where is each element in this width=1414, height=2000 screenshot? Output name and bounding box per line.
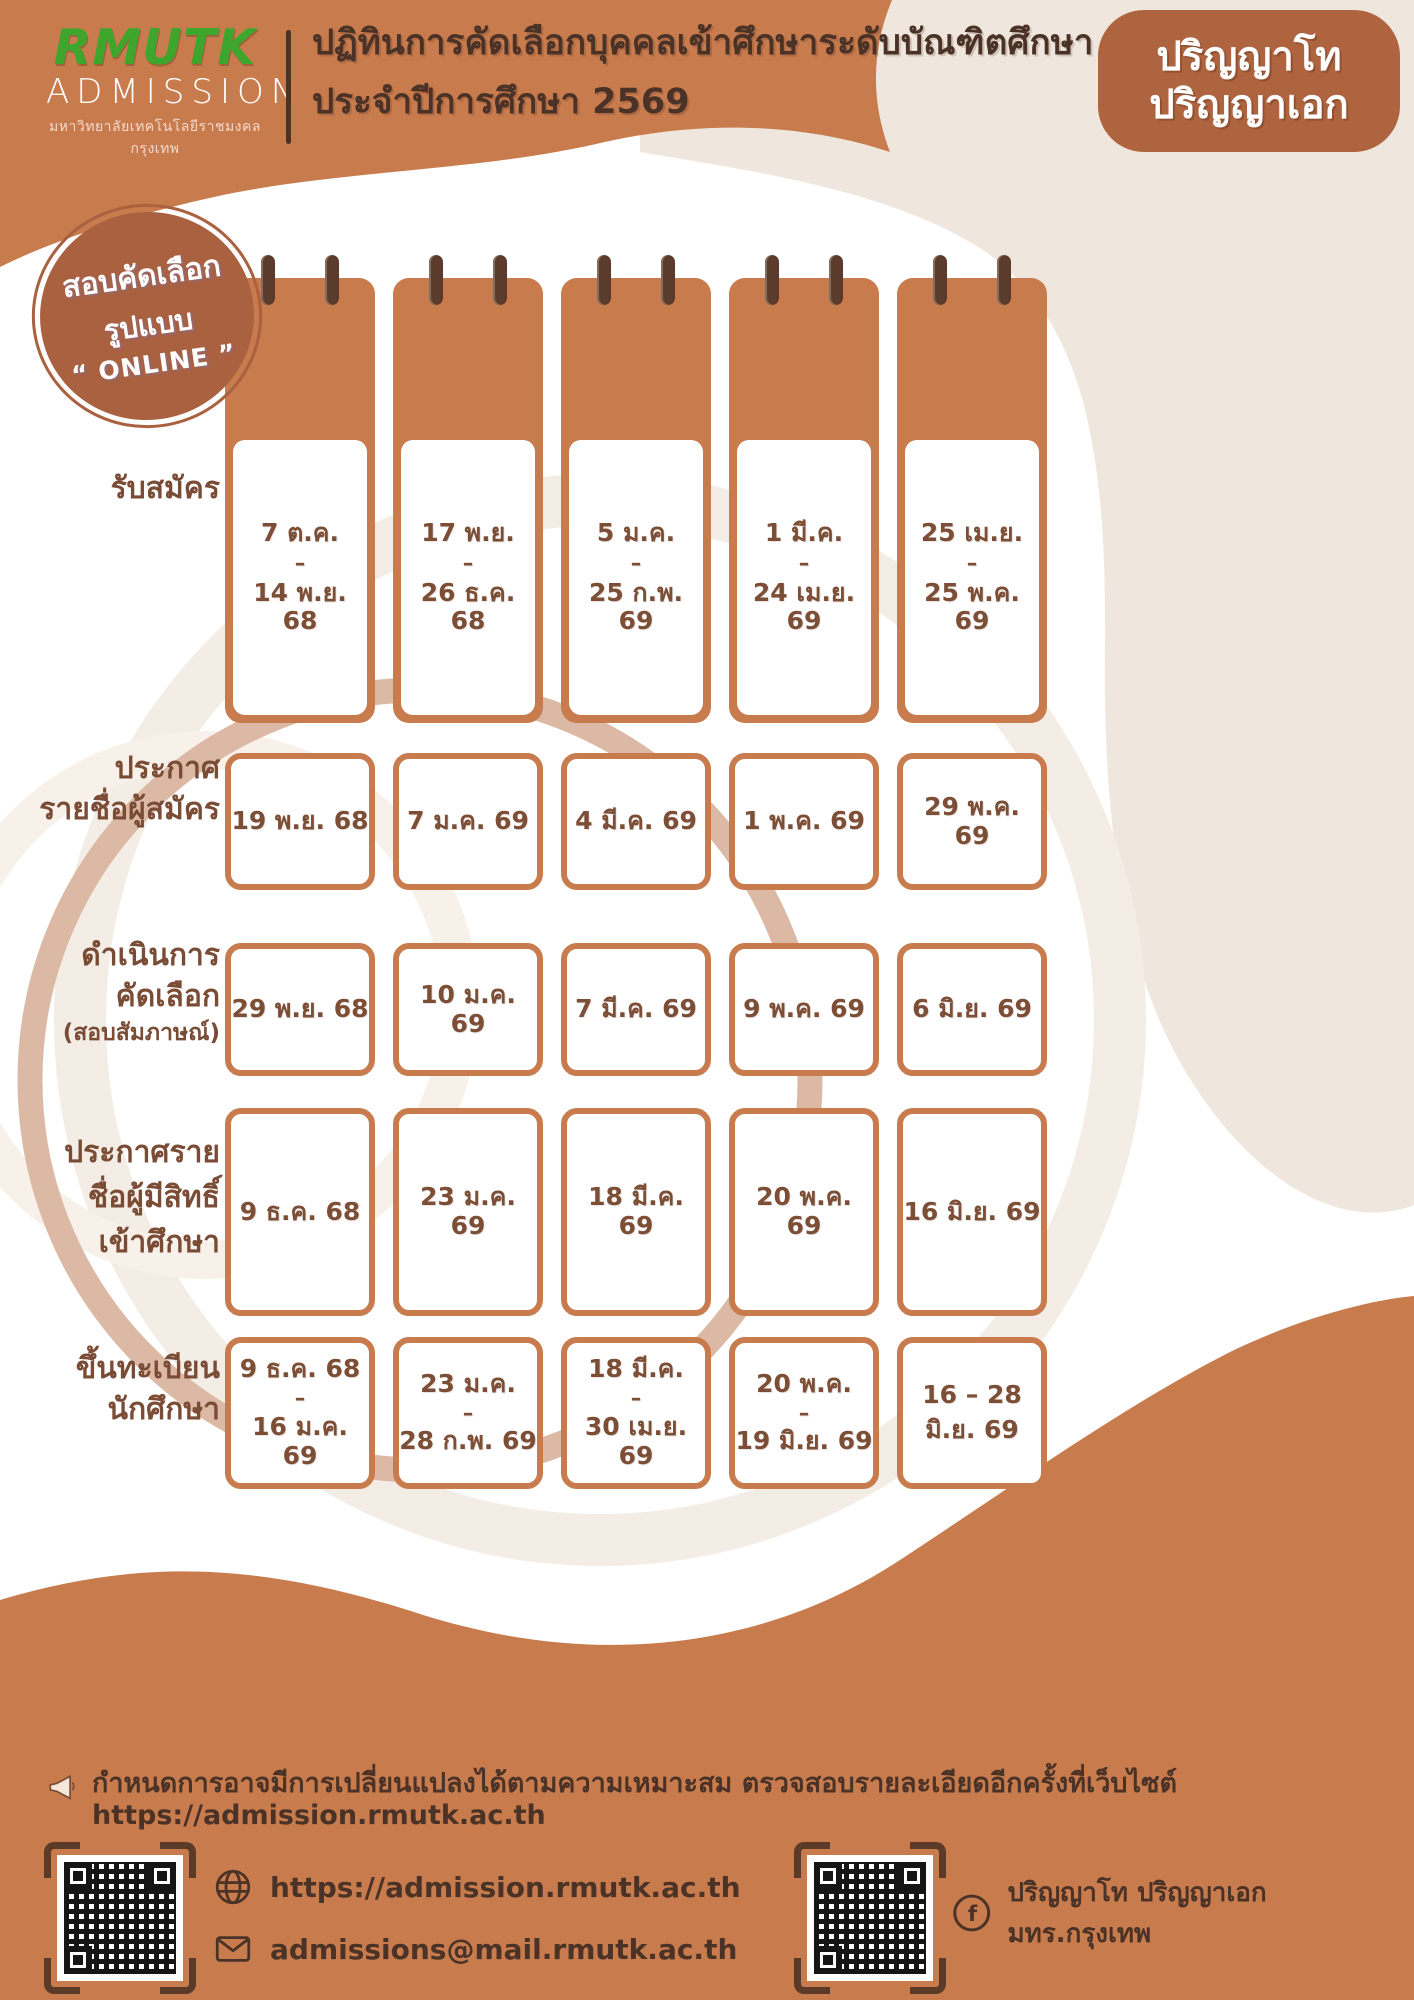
calendar-card: 25 เม.ย. – 25 พ.ค. 69 <box>897 278 1047 723</box>
degree-masters: ปริญญาโท <box>1156 36 1341 78</box>
logo-admission-text: ADMISSION <box>46 73 270 112</box>
badge-line2: รูปแบบ <box>101 296 196 354</box>
poster-title: ปฏิทินการคัดเลือกบุคคลเข้าศึกษาระดับบัณฑ… <box>312 26 1093 120</box>
logo-brand-text: RMUTK <box>40 22 270 73</box>
schedule-cell: 23 ม.ค. – 28 ก.พ. 69 <box>393 1337 543 1489</box>
note-url[interactable]: https://admission.rmutk.ac.th <box>92 1800 546 1831</box>
row-label-apply: รับสมัคร <box>8 468 220 509</box>
binder-ring-icon <box>325 255 339 305</box>
binder-ring-icon <box>429 255 443 305</box>
row-label-enrollment: ขึ้นทะเบียน นักศึกษา <box>8 1348 220 1431</box>
degree-doctoral: ปริญญาเอก <box>1149 84 1348 126</box>
badge-line3: “ ONLINE ” <box>70 338 238 390</box>
facebook-qr-code[interactable] <box>794 1842 946 1994</box>
schedule-cell: 7 มี.ค. 69 <box>561 943 711 1076</box>
calendar-card: 17 พ.ย. – 26 ธ.ค. 68 <box>393 278 543 723</box>
schedule-cell: 23 ม.ค. 69 <box>393 1108 543 1316</box>
svg-text:f: f <box>968 1902 978 1927</box>
schedule-cell: 9 ธ.ค. 68 <box>225 1108 375 1316</box>
logo-university-text: มหาวิทยาลัยเทคโนโลยีราชมงคลกรุงเทพ <box>40 116 270 160</box>
globe-icon <box>212 1866 254 1908</box>
schedule-cell: 9 ธ.ค. 68 – 16 ม.ค. 69 <box>225 1337 375 1489</box>
date-panel: 25 เม.ย. – 25 พ.ค. 69 <box>905 440 1039 715</box>
schedule-cell: 18 มี.ค. 69 <box>561 1108 711 1316</box>
binder-ring-icon <box>661 255 675 305</box>
badge-line1: สอบคัดเลือก <box>59 242 224 311</box>
schedule-cell: 29 พ.ค. 69 <box>897 753 1047 890</box>
date-panel: 1 มี.ค. – 24 เม.ย. 69 <box>737 440 871 715</box>
date-panel: 17 พ.ย. – 26 ธ.ค. 68 <box>401 440 535 715</box>
schedule-cell: 7 ม.ค. 69 <box>393 753 543 890</box>
email-link[interactable]: admissions@mail.rmutk.ac.th <box>212 1928 737 1970</box>
website-link[interactable]: https://admission.rmutk.ac.th <box>212 1866 741 1908</box>
rmutk-logo: RMUTK ADMISSION มหาวิทยาลัยเทคโนโลยีราชม… <box>40 22 270 160</box>
schedule-cell: 4 มี.ค. 69 <box>561 753 711 890</box>
schedule-cell: 16 มิ.ย. 69 <box>897 1108 1047 1316</box>
schedule-cell: 20 พ.ค. – 19 มิ.ย. 69 <box>729 1337 879 1489</box>
degree-level-badge: ปริญญาโท ปริญญาเอก <box>1098 10 1400 152</box>
schedule-cell: 19 พ.ย. 68 <box>225 753 375 890</box>
binder-ring-icon <box>765 255 779 305</box>
schedule-cell: 10 ม.ค. 69 <box>393 943 543 1076</box>
row-label-selection: ดำเนินการ คัดเลือก (สอบสัมภาษณ์) <box>8 936 220 1049</box>
schedule-cell: 9 พ.ค. 69 <box>729 943 879 1076</box>
date-panel: 7 ต.ค. – 14 พ.ย. 68 <box>233 440 367 715</box>
binder-ring-icon <box>493 255 507 305</box>
facebook-link[interactable]: f ปริญญาโท ปริญญาเอก มทร.กรุงเทพ <box>952 1872 1414 1954</box>
envelope-icon <box>212 1928 254 1970</box>
binder-ring-icon <box>997 255 1011 305</box>
binder-ring-icon <box>261 255 275 305</box>
binder-ring-icon <box>829 255 843 305</box>
date-panel: 5 ม.ค. – 25 ก.พ. 69 <box>569 440 703 715</box>
note-text: กำหนดการอาจมีการเปลี่ยนแปลงได้ตามความเหม… <box>92 1768 1177 1799</box>
schedule-cell: 1 พ.ค. 69 <box>729 753 879 890</box>
facebook-icon: f <box>952 1893 991 1933</box>
disclaimer-note: กำหนดการอาจมีการเปลี่ยนแปลงได้ตามความเหม… <box>46 1768 1386 1833</box>
schedule-cell: 18 มี.ค. – 30 เม.ย. 69 <box>561 1337 711 1489</box>
title-line2: ประจำปีการศึกษา 2569 <box>312 85 1093 120</box>
header-divider <box>286 30 291 144</box>
website-qr-code[interactable] <box>44 1842 196 1994</box>
calendar-card: 5 ม.ค. – 25 ก.พ. 69 <box>561 278 711 723</box>
megaphone-icon <box>46 1770 80 1804</box>
schedule-cell: 20 พ.ค. 69 <box>729 1108 879 1316</box>
row-label-applicant-list: ประกาศ รายชื่อผู้สมัคร <box>8 748 220 831</box>
calendar-card: 1 มี.ค. – 24 เม.ย. 69 <box>729 278 879 723</box>
schedule-cell: 6 มิ.ย. 69 <box>897 943 1047 1076</box>
schedule-cell: 16 – 28 มิ.ย. 69 <box>897 1337 1047 1489</box>
row-label-eligible-list: ประกาศราย ชื่อผู้มีสิทธิ์ เข้าศึกษา <box>8 1130 220 1265</box>
title-line1: ปฏิทินการคัดเลือกบุคคลเข้าศึกษาระดับบัณฑ… <box>312 26 1093 61</box>
binder-ring-icon <box>597 255 611 305</box>
binder-ring-icon <box>933 255 947 305</box>
schedule-cell: 29 พ.ย. 68 <box>225 943 375 1076</box>
admission-calendar-poster: RMUTK ADMISSION มหาวิทยาลัยเทคโนโลยีราชม… <box>0 0 1414 2000</box>
